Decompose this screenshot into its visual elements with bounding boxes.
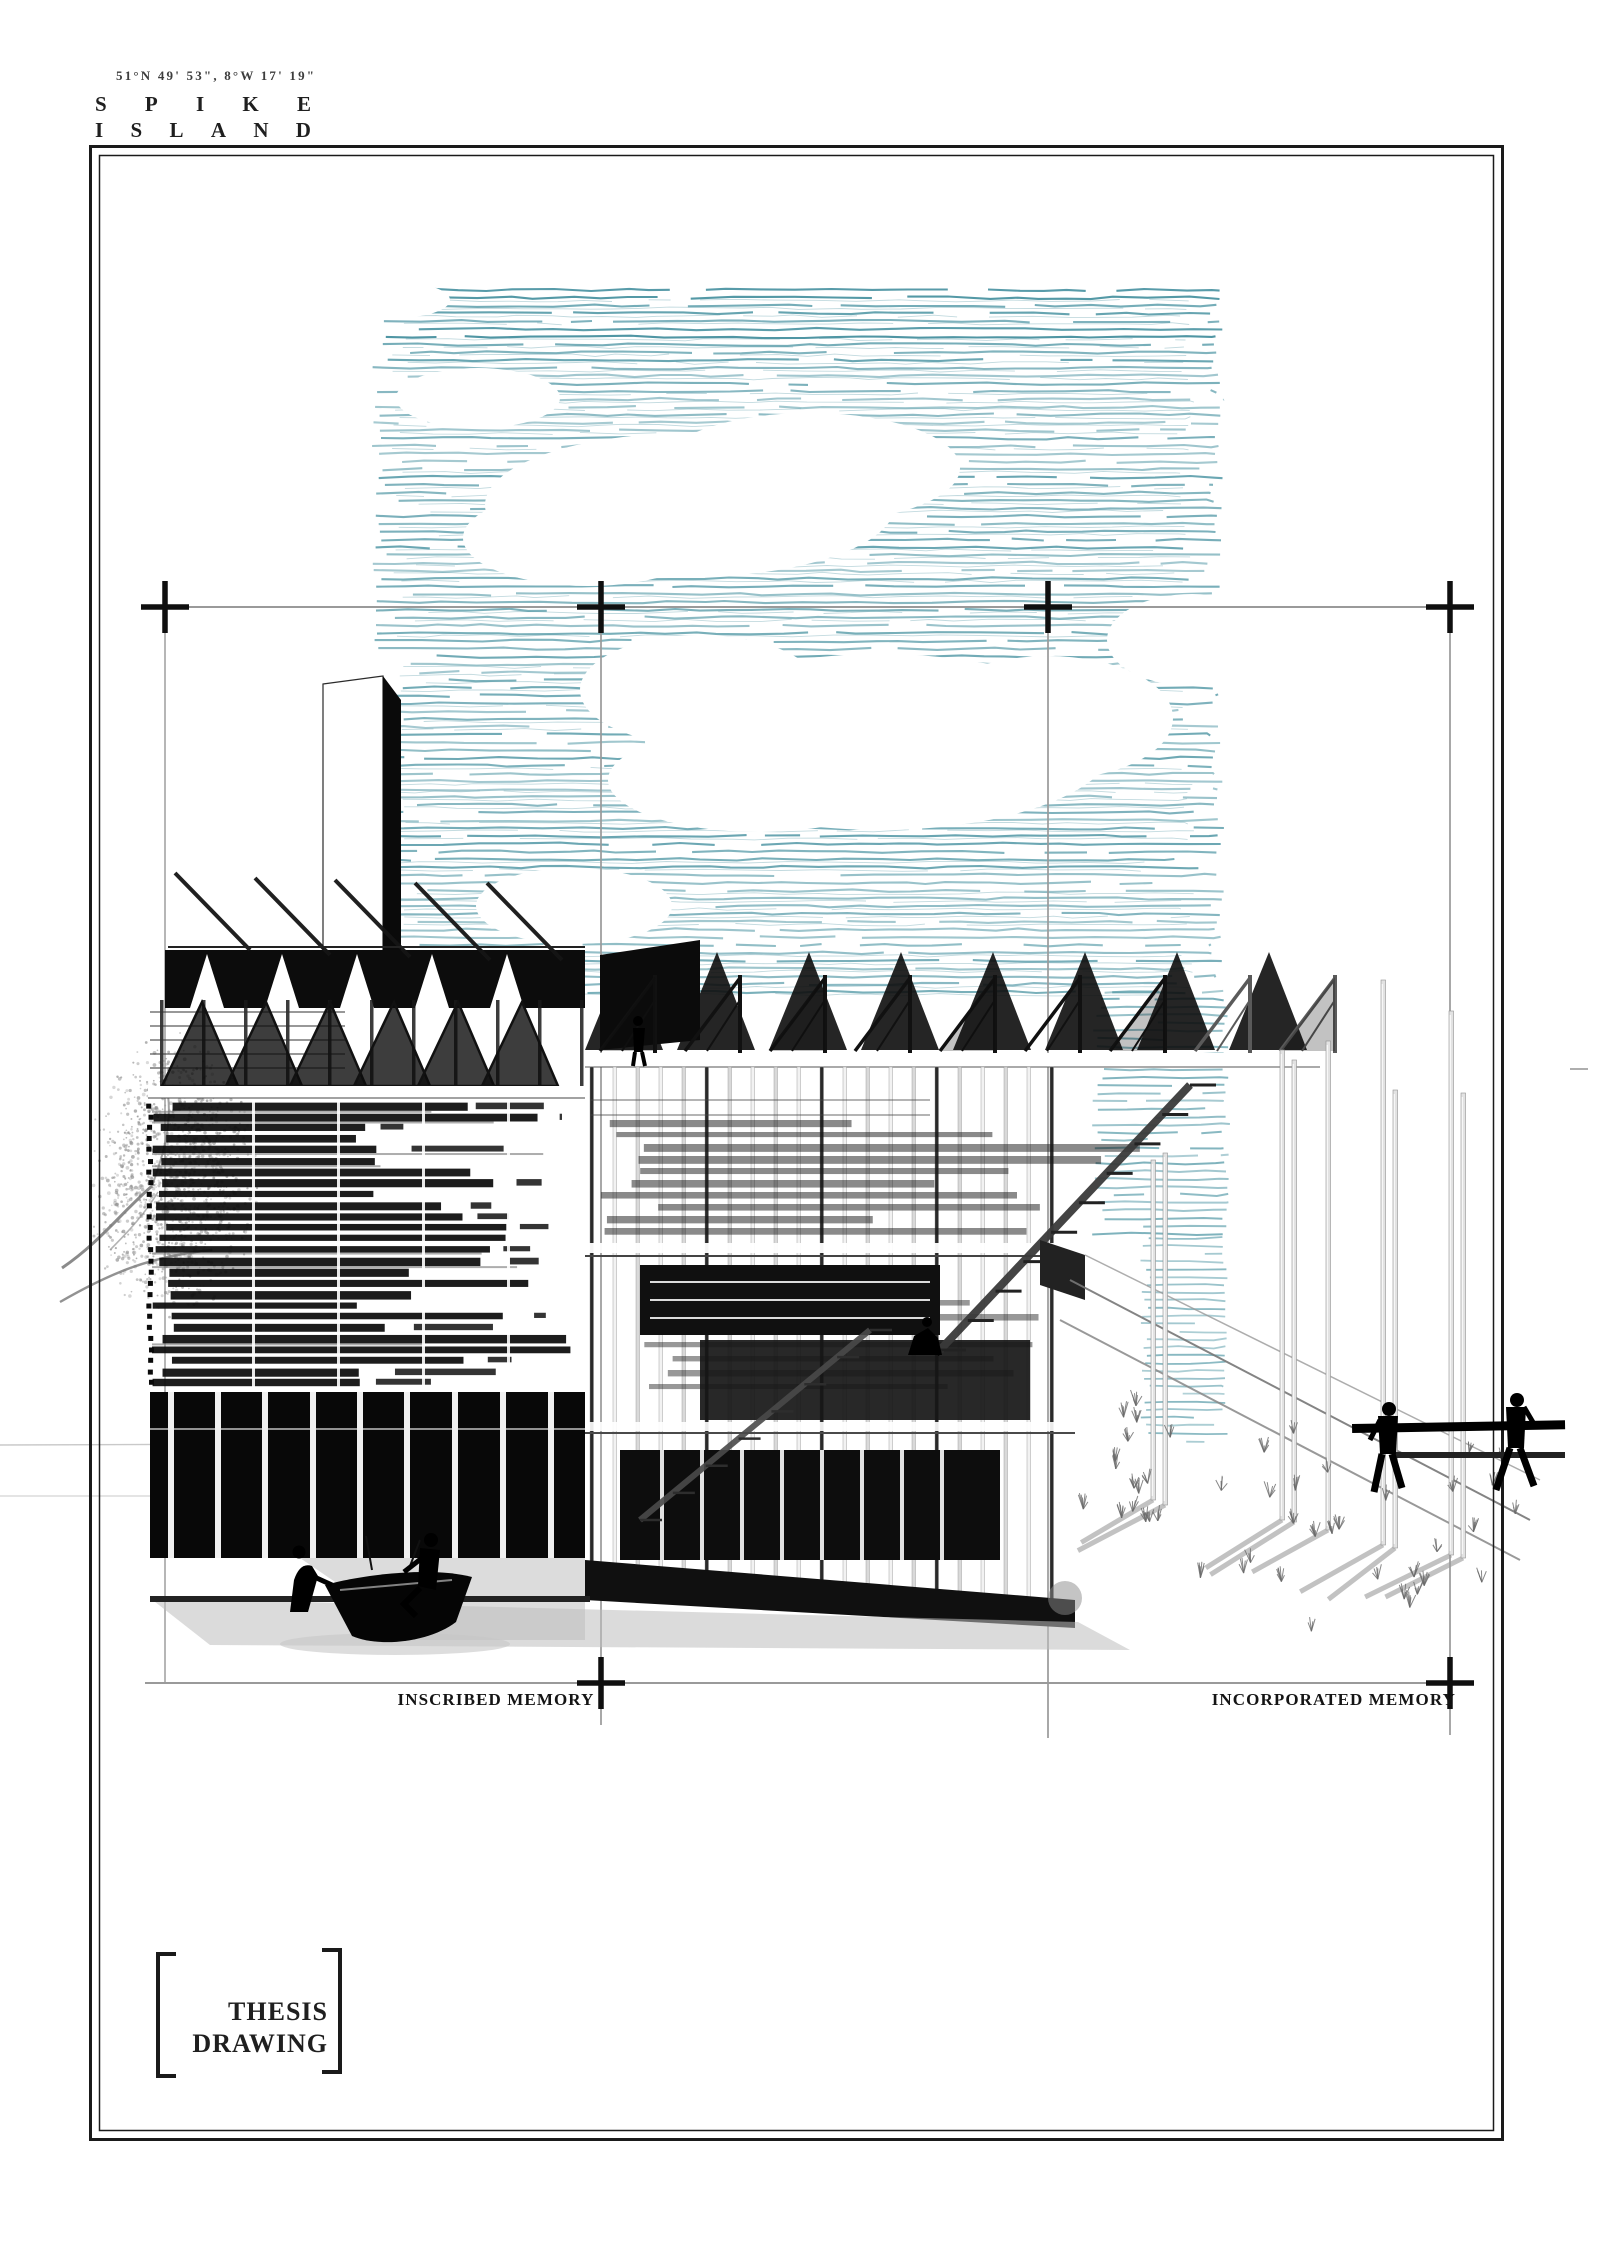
poster-page: 51°N 49' 53", 8°W 17' 19" SPIKE ISLAND I… xyxy=(0,0,1600,2266)
stamp-line1: THESIS xyxy=(178,1996,328,2028)
poster-title-line2: ISLAND xyxy=(95,118,311,143)
ramp-and-poles xyxy=(1040,980,1540,1615)
building-left-block xyxy=(146,873,585,1640)
stamp-bracket-left-icon xyxy=(156,1952,176,2078)
stamp-text: THESIS DRAWING xyxy=(178,1996,328,2060)
section-label-incorporated-memory: INCORPORATED MEMORY xyxy=(1198,1690,1456,1710)
poster-title-line1: SPIKE xyxy=(95,92,311,117)
section-label-inscribed-memory: INSCRIBED MEMORY xyxy=(390,1690,602,1710)
thesis-drawing-stamp: THESIS DRAWING xyxy=(156,1952,342,2080)
stamp-line2: DRAWING xyxy=(178,2028,328,2060)
site-coordinates: 51°N 49' 53", 8°W 17' 19" xyxy=(116,68,316,84)
thesis-drawing-artwork xyxy=(0,0,1600,2266)
